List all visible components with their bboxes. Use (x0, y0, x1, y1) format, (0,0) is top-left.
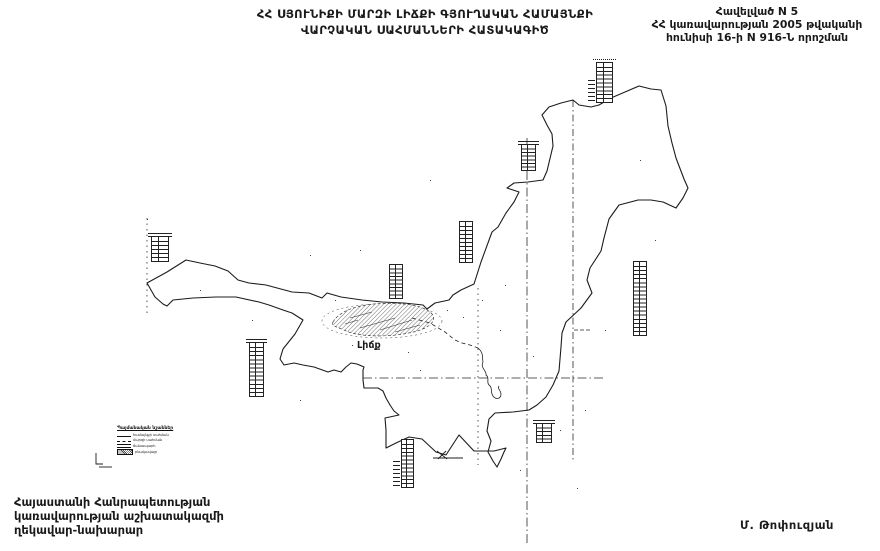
coordinate-table (459, 221, 473, 263)
table-header-bar (246, 339, 267, 343)
table-rows (597, 64, 612, 101)
table-column-divider (406, 440, 407, 487)
table-rows (250, 344, 263, 395)
scan-speck (200, 290, 201, 291)
scan-speck (520, 470, 521, 471)
legend-item: ճանապարհ (117, 444, 217, 448)
scan-speck (585, 410, 586, 411)
coordinate-table (389, 264, 403, 299)
signatory-line3: ղեկավար-նախարար (14, 523, 224, 537)
scan-speck (352, 345, 353, 346)
scan-speck (505, 285, 506, 286)
scan-speck (147, 219, 148, 220)
scan-speck (447, 310, 448, 311)
table-header-bar (593, 59, 616, 62)
coordinate-table (596, 62, 613, 103)
legend-item: մարզի սահման (117, 438, 217, 442)
table-column-divider (465, 222, 466, 262)
scan-speck (310, 255, 311, 256)
line-double-icon (117, 444, 131, 448)
scan-speck (500, 330, 501, 331)
map-canvas: Լիճք (0, 0, 880, 551)
scan-speck (605, 330, 606, 331)
table-rows (537, 425, 551, 441)
coordinate-table (151, 236, 169, 262)
signatory-line2: կառավարության աշխատակազմի (14, 509, 224, 523)
line-solid-icon (117, 433, 131, 437)
coordinate-table (249, 342, 264, 397)
scan-speck (655, 240, 656, 241)
scan-speck (360, 250, 361, 251)
legend-item: համայնքի սահման (117, 433, 217, 437)
table-column-divider (542, 424, 543, 442)
table-rows (460, 223, 472, 261)
table-column-divider (158, 237, 159, 261)
table-column-divider (527, 145, 528, 170)
line-dashdot-icon (117, 438, 131, 442)
table-column-divider (639, 262, 640, 335)
scan-speck (430, 180, 431, 181)
signatory-block: Հայաստանի Հանրապետության կառավարության ա… (14, 495, 224, 537)
scan-speck (577, 488, 578, 489)
hatch-icon (117, 449, 133, 455)
stream-line (478, 348, 501, 398)
table-rows (152, 238, 168, 260)
scan-speck (420, 370, 421, 371)
table-header-bar (148, 233, 172, 237)
document-page: ՀՀ ՍՅՈՒՆԻՔԻ ՄԱՐԶԻ ԼԻՃՔԻ ԳՅՈՒՂԱԿԱՆ ՀԱՄԱՅՆ… (0, 0, 880, 551)
table-column-divider (255, 343, 256, 396)
scan-speck (252, 320, 253, 321)
legend-item-label: ճանապարհ (133, 444, 156, 448)
scan-speck (335, 300, 336, 301)
scan-speck (533, 356, 534, 357)
signature-name: Մ. Թոփուզյան (740, 518, 834, 532)
scan-speck (560, 430, 561, 431)
settlement-label: Լիճք (357, 340, 381, 351)
coordinate-table (633, 261, 647, 336)
map-legend: Պայմանական նշաններ համայնքի սահմանմարզի … (117, 426, 217, 455)
scan-speck (463, 317, 464, 318)
scan-speck (408, 352, 409, 353)
scan-speck (482, 300, 483, 301)
community-boundary (147, 86, 688, 467)
coordinate-table (536, 423, 552, 443)
legend-title: Պայմանական նշաններ (117, 426, 217, 431)
table-column-divider (603, 63, 604, 102)
coordinate-table (521, 144, 536, 171)
table-side-marks (393, 458, 400, 487)
table-rows (522, 146, 535, 169)
table-side-marks (588, 77, 595, 102)
legend-item-label: համայնքի սահման (133, 433, 169, 437)
table-rows (390, 266, 402, 297)
table-header-bar (533, 420, 555, 424)
legend-item-label: բնակավայր (135, 450, 157, 454)
legend-items: համայնքի սահմանմարզի սահմանճանապարհբնակա… (117, 433, 217, 456)
table-rows (402, 441, 413, 486)
table-header-bar (518, 141, 539, 145)
settlement-area (322, 303, 442, 338)
table-column-divider (395, 265, 396, 298)
scan-speck (300, 400, 301, 401)
road-line (412, 318, 501, 398)
legend-item-label: մարզի սահման (133, 438, 162, 442)
legend-item: բնակավայր (117, 449, 217, 455)
coordinate-table (401, 439, 414, 488)
signatory-line1: Հայաստանի Հանրապետության (14, 495, 224, 509)
scan-speck (640, 160, 641, 161)
table-rows (634, 263, 646, 334)
